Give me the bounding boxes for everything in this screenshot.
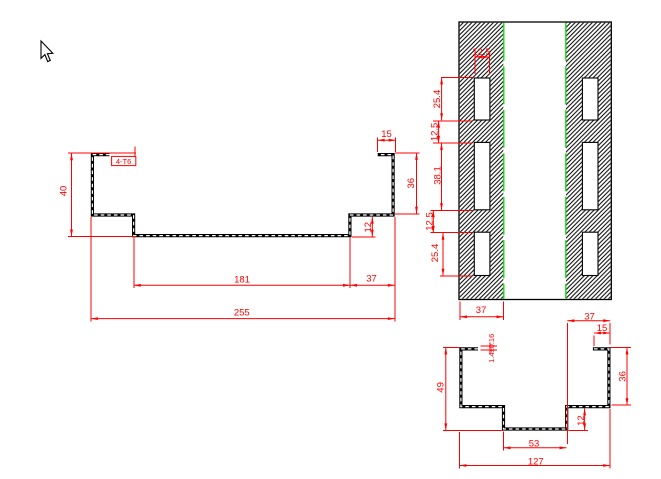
svg-text:37: 37 bbox=[476, 305, 487, 316]
svg-text:25.4: 25.4 bbox=[430, 244, 441, 263]
svg-text:1.4±0.16: 1.4±0.16 bbox=[487, 334, 496, 363]
svg-text:127: 127 bbox=[528, 456, 544, 467]
svg-text:12.5: 12.5 bbox=[424, 212, 435, 231]
svg-text:15: 15 bbox=[597, 323, 608, 334]
svg-text:12.5: 12.5 bbox=[430, 123, 441, 142]
svg-text:4-T6: 4-T6 bbox=[116, 157, 131, 166]
svg-text:25.4: 25.4 bbox=[432, 90, 443, 109]
svg-text:36: 36 bbox=[618, 371, 629, 382]
svg-text:181: 181 bbox=[234, 274, 250, 285]
svg-text:38.1: 38.1 bbox=[433, 166, 444, 185]
svg-text:255: 255 bbox=[234, 308, 250, 319]
svg-text:15: 15 bbox=[381, 129, 392, 140]
svg-text:37: 37 bbox=[366, 274, 377, 285]
svg-text:53: 53 bbox=[529, 438, 540, 449]
svg-text:37: 37 bbox=[584, 311, 595, 322]
svg-text:36: 36 bbox=[406, 178, 417, 189]
svg-text:12.5: 12.5 bbox=[472, 47, 491, 58]
svg-text:49: 49 bbox=[435, 382, 446, 393]
svg-text:12: 12 bbox=[363, 222, 374, 233]
svg-text:40: 40 bbox=[59, 186, 70, 197]
svg-text:12: 12 bbox=[576, 415, 587, 426]
